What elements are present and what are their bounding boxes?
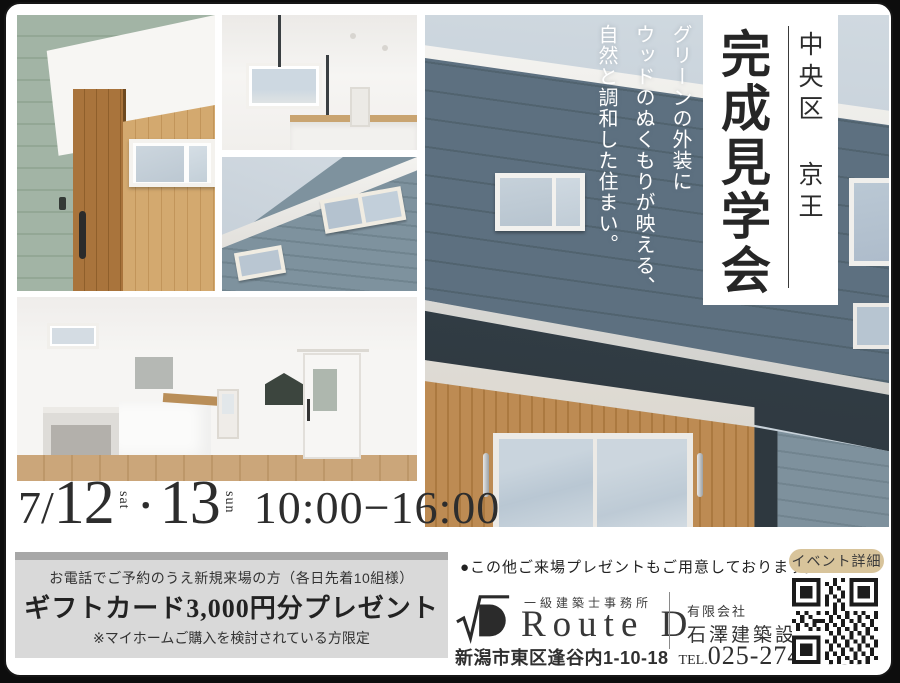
hall-window bbox=[246, 63, 322, 109]
event-schedule: 7/ 12 sat ・ 13 sun 10:00−16:00 bbox=[18, 477, 500, 530]
tel-label: TEL. bbox=[679, 653, 708, 669]
month: 7/ bbox=[18, 487, 54, 529]
offer-box-top-bar bbox=[15, 552, 448, 560]
right-window bbox=[849, 178, 889, 266]
divider-line bbox=[788, 26, 789, 288]
event-hours: 10:00−16:00 bbox=[254, 487, 501, 529]
qr-label-badge: イベント詳細 bbox=[789, 549, 884, 573]
photo-kitchen-ldk bbox=[17, 297, 417, 481]
offer-note: ※マイホームご購入を検討されている方限定 bbox=[15, 628, 448, 648]
event-title: 完成見学会 bbox=[717, 28, 767, 298]
photo-exterior-eave bbox=[222, 157, 417, 291]
wall-niche bbox=[265, 373, 303, 405]
hanging-rod bbox=[278, 15, 281, 67]
title-band: 完成見学会 中央区 京王 bbox=[703, 4, 838, 305]
flyer-canvas: グリーンの外装に ウッドのぬくもりが映える、 自然と調和した住まい。 完成見学会… bbox=[0, 0, 900, 683]
main-window bbox=[493, 433, 693, 527]
kitchen-back bbox=[135, 357, 173, 389]
entrance-wood-wall bbox=[123, 105, 215, 291]
qr-code-icon bbox=[792, 578, 878, 664]
entrance-window bbox=[129, 139, 215, 187]
right-lower-window bbox=[853, 303, 889, 349]
offer-headline: ギフトカード3,000円分プレゼント bbox=[15, 588, 448, 625]
flyer-stage: グリーンの外装に ウッドのぬくもりが映える、 自然と調和した住まい。 完成見学会… bbox=[0, 0, 900, 683]
route-d-logo-icon bbox=[453, 590, 515, 648]
offer-condition: お電話でご予約のうえ新規来場の方（各日先着10組様） bbox=[15, 568, 448, 588]
tagline: グリーンの外装に ウッドのぬくもりが映える、 自然と調和した住まい。 bbox=[587, 24, 698, 324]
window-pull bbox=[697, 453, 703, 497]
hall-doorway bbox=[350, 87, 370, 127]
door-track bbox=[297, 349, 369, 352]
photo-interior-hall bbox=[222, 15, 417, 150]
event-location: 中央区 京王 bbox=[796, 31, 821, 225]
day-2: 13 bbox=[160, 477, 220, 530]
company-prefix: 有限会社 bbox=[687, 601, 747, 620]
day-2-weekday: sun bbox=[221, 491, 237, 527]
address-text: 新潟市東区逢谷内1-10-18 bbox=[455, 644, 669, 670]
sliding-door bbox=[303, 353, 361, 459]
porch-lamp bbox=[59, 197, 66, 210]
downlight bbox=[382, 45, 388, 51]
day-1: 12 bbox=[54, 477, 114, 530]
hanging-rod bbox=[326, 55, 329, 117]
slit-window bbox=[47, 323, 99, 349]
entrance-wood-door bbox=[73, 89, 126, 291]
extra-present-note: ●この他ご来場プレゼントもご用意しております。 bbox=[460, 556, 820, 577]
hallway-door bbox=[217, 389, 239, 439]
downlight bbox=[350, 33, 356, 39]
day-1-weekday: sat bbox=[115, 491, 131, 527]
gift-offer-box: お電話でご予約のうえ新規来場の方（各日先着10組様） ギフトカード3,000円分… bbox=[15, 552, 448, 658]
upper-window bbox=[495, 173, 585, 231]
door-handle bbox=[307, 399, 310, 421]
door-handle bbox=[79, 211, 86, 259]
day-separator: ・ bbox=[133, 494, 159, 520]
photo-entrance bbox=[17, 15, 215, 291]
kitchen-island bbox=[119, 401, 211, 455]
